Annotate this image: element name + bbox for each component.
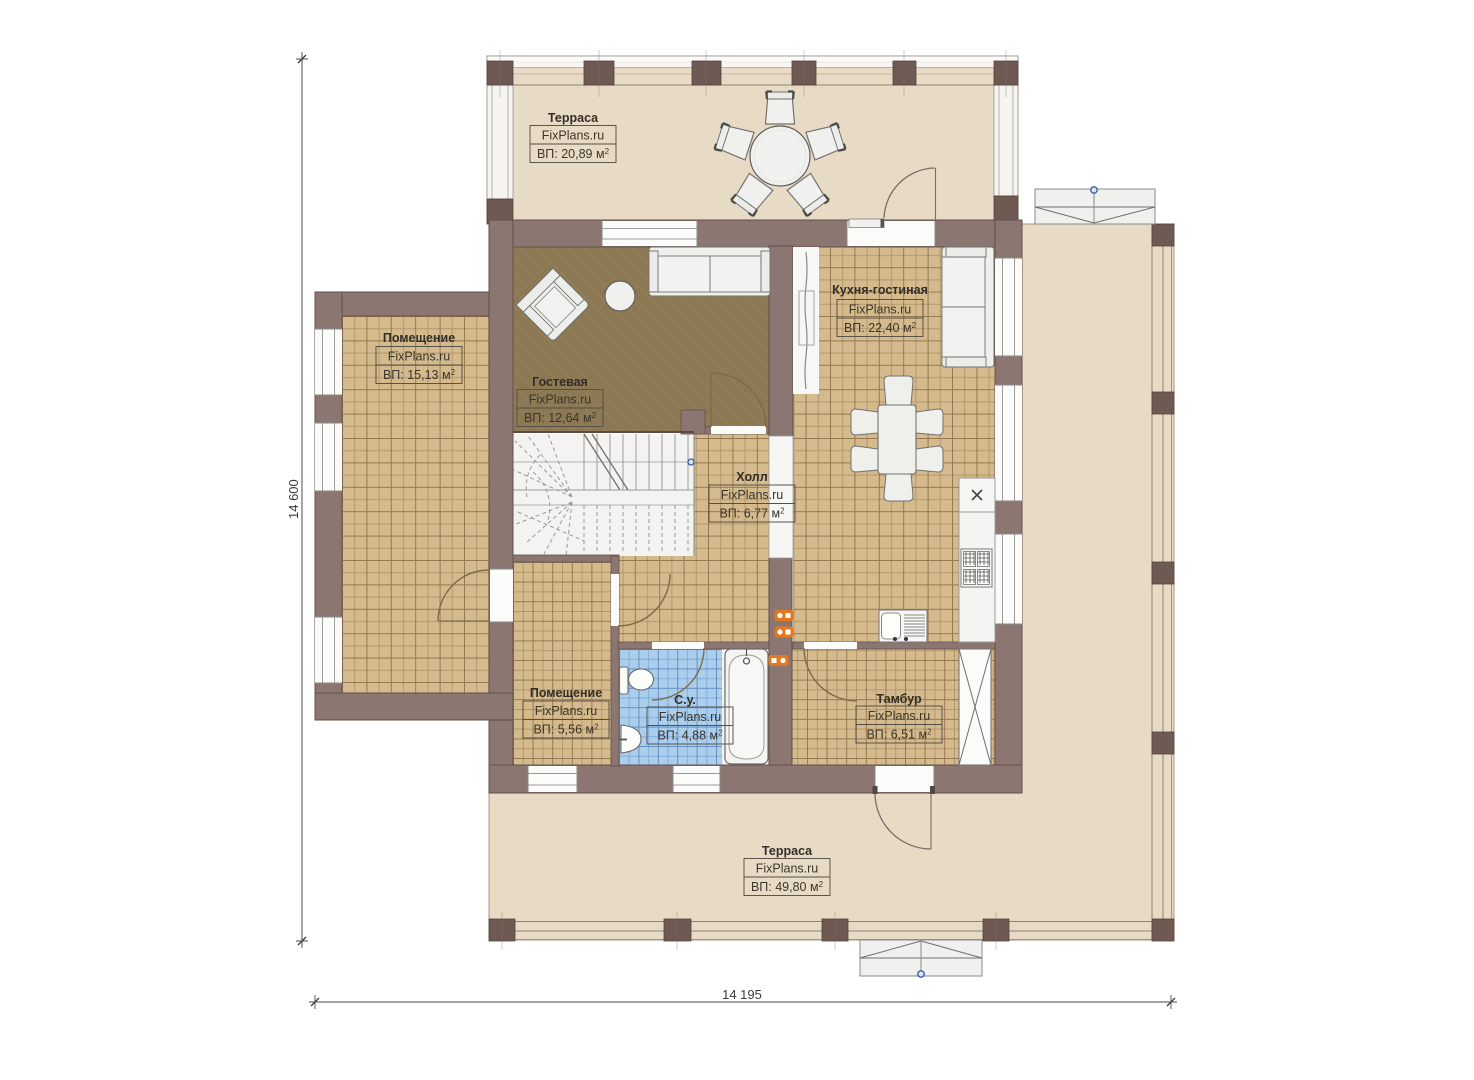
svg-text:ВП: 6,51 м2: ВП: 6,51 м2 [866, 728, 932, 742]
svg-text:ВП: 15,13 м2: ВП: 15,13 м2 [383, 368, 456, 382]
svg-text:Помещение: Помещение [530, 686, 602, 700]
svg-text:Тамбур: Тамбур [876, 692, 922, 706]
svg-text:FixPlans.ru: FixPlans.ru [756, 862, 819, 876]
svg-text:FixPlans.ru: FixPlans.ru [388, 350, 451, 364]
svg-text:ВП: 6,77 м2: ВП: 6,77 м2 [719, 507, 785, 521]
svg-text:ВП: 49,80 м2: ВП: 49,80 м2 [751, 880, 824, 894]
svg-text:FixPlans.ru: FixPlans.ru [529, 393, 592, 407]
svg-text:Кухня-гостиная: Кухня-гостиная [832, 283, 928, 297]
svg-text:14 600: 14 600 [286, 479, 301, 519]
svg-text:FixPlans.ru: FixPlans.ru [535, 704, 598, 718]
svg-text:ВП: 5,56 м2: ВП: 5,56 м2 [533, 723, 599, 737]
svg-text:14 195: 14 195 [722, 987, 762, 1002]
svg-text:Терраса: Терраса [548, 111, 599, 125]
svg-text:FixPlans.ru: FixPlans.ru [849, 303, 912, 317]
svg-text:FixPlans.ru: FixPlans.ru [659, 710, 722, 724]
svg-text:Терраса: Терраса [762, 844, 813, 858]
svg-text:ВП: 4,88 м2: ВП: 4,88 м2 [657, 729, 723, 743]
svg-text:ВП: 12,64 м2: ВП: 12,64 м2 [524, 411, 597, 425]
svg-text:FixPlans.ru: FixPlans.ru [542, 129, 605, 143]
svg-text:С.у.: С.у. [674, 693, 696, 707]
svg-text:Холл: Холл [736, 470, 767, 484]
svg-text:ВП: 20,89 м2: ВП: 20,89 м2 [537, 147, 610, 161]
svg-text:Гостевая: Гостевая [532, 375, 588, 389]
svg-text:FixPlans.ru: FixPlans.ru [868, 709, 931, 723]
svg-text:Помещение: Помещение [383, 331, 455, 345]
svg-text:FixPlans.ru: FixPlans.ru [721, 488, 784, 502]
svg-text:ВП: 22,40 м2: ВП: 22,40 м2 [844, 321, 917, 335]
